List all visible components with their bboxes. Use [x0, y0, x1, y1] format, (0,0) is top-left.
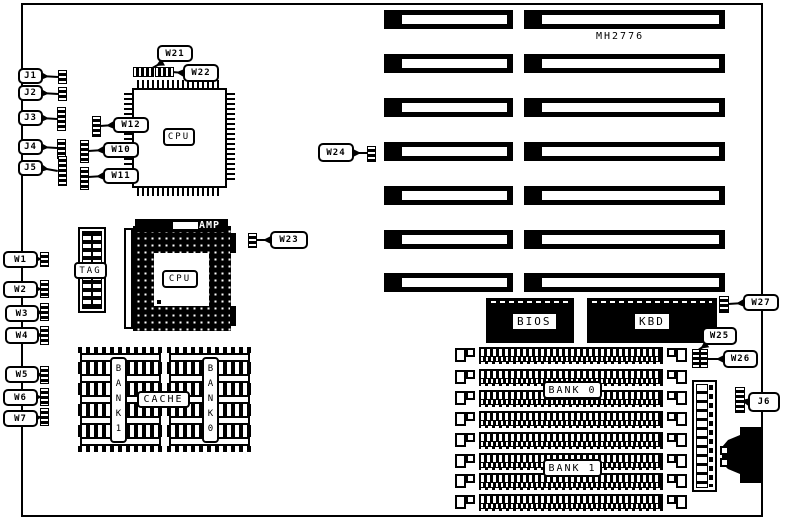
- simm-latch-right-icon: [676, 348, 687, 362]
- jumper-J3: [57, 107, 66, 131]
- jumper-W1: [40, 252, 49, 267]
- isa-slot-short: [384, 186, 513, 205]
- callout-J3: J3: [18, 110, 43, 126]
- pga-pin1-marker: [157, 300, 161, 304]
- isa-slot-long: [524, 10, 725, 29]
- callout-W24: W24: [318, 143, 354, 162]
- simm-latch-left-hook-icon: [466, 348, 475, 357]
- simm-latch-right-hook-icon: [667, 370, 676, 379]
- callout-J4: J4: [18, 139, 43, 155]
- simm-socket: [455, 411, 687, 428]
- qfp-cpu-pins-bottom-icon: [137, 188, 222, 196]
- simm-solder-pads-icon: [481, 488, 661, 490]
- callout-W2: W2: [3, 281, 38, 298]
- simm-pins-lower-icon: [481, 400, 661, 404]
- simm-latch-left-hook-icon: [466, 412, 475, 421]
- jumper-W6: [40, 388, 49, 406]
- dip-pins-bottom-icon: [78, 446, 163, 452]
- simm-latch-right-icon: [676, 474, 687, 488]
- simm-latch-right-hook-icon: [667, 495, 676, 504]
- simm-latch-left-hook-icon: [466, 370, 475, 379]
- simm-latch-right-icon: [676, 370, 687, 384]
- keyboard-din-connector: [720, 427, 763, 483]
- callout-W11: W11: [103, 168, 139, 184]
- simm-latch-right-hook-icon: [667, 391, 676, 400]
- isa-slot-short: [384, 54, 513, 73]
- simm-solder-pads-icon: [481, 426, 661, 428]
- simm-socket: [455, 494, 687, 511]
- simm-pins-lower-icon: [481, 442, 661, 446]
- isa-slot-opening: [542, 147, 719, 156]
- isa-slot-long: [524, 142, 725, 161]
- callout-W3: W3: [5, 305, 39, 322]
- isa-slot-short: [384, 230, 513, 249]
- jumper-J5: [58, 156, 67, 186]
- simm-pins-upper-icon: [481, 349, 661, 356]
- isa-slot-opening: [542, 103, 719, 112]
- power-connector-key-column-icon: [709, 385, 713, 487]
- jumper-W24: [367, 146, 376, 162]
- isa-slot-opening: [402, 59, 507, 68]
- simm-latch-left-hook-icon: [466, 454, 475, 463]
- callout-W12: W12: [113, 117, 149, 133]
- isa-slot-long: [524, 186, 725, 205]
- simm-solder-pads-icon: [481, 362, 661, 364]
- isa-slot-opening: [402, 15, 507, 24]
- kbd-label: KBD: [634, 313, 670, 330]
- callout-W21: W21: [157, 45, 193, 62]
- simm-latch-right-hook-icon: [667, 454, 676, 463]
- dip-pins-bottom-icon: [167, 446, 252, 452]
- pga-cpu-label: CPU: [162, 270, 198, 288]
- simm-latch-left-icon: [455, 370, 466, 384]
- isa-slot-opening: [402, 103, 507, 112]
- cache-label: CACHE: [137, 391, 190, 408]
- cache-bank1-label: BANK1: [110, 357, 127, 443]
- tag-label: TAG: [74, 262, 107, 279]
- simm-latch-left-icon: [455, 391, 466, 405]
- callout-W1: W1: [3, 251, 38, 268]
- jumper-J1: [58, 70, 67, 84]
- simm-latch-left-hook-icon: [466, 495, 475, 504]
- isa-slot-opening: [542, 278, 719, 287]
- bios-chip-notch-icon: [491, 301, 569, 303]
- callout-W22: W22: [183, 64, 219, 82]
- simm-pins-upper-icon: [481, 371, 661, 378]
- simm-socket: [455, 432, 687, 449]
- simm-latch-right-icon: [676, 412, 687, 426]
- simm-pins-lower-icon: [481, 504, 661, 508]
- motherboard-jumper-diagram: MH2776 CPU AMP CPU TAG BANK1 BANK0 CACHE…: [0, 0, 786, 520]
- simm-latch-left-hook-icon: [466, 433, 475, 442]
- jumper-J6: [735, 387, 745, 413]
- isa-slot-opening: [402, 235, 507, 244]
- simm-pin-bar: [479, 347, 663, 364]
- callout-W4: W4: [5, 327, 39, 344]
- callout-J5: J5: [18, 160, 43, 176]
- simm-latch-left-hook-icon: [466, 474, 475, 483]
- din-tab-bottom-icon: [720, 458, 729, 467]
- simm-latch-right-icon: [676, 495, 687, 509]
- jumper-W23: [248, 233, 257, 248]
- jumper-W4: [40, 326, 49, 345]
- kbd-chip-notch-icon: [592, 301, 712, 303]
- jumper-W7: [40, 408, 49, 426]
- jumper-W25: [692, 349, 700, 368]
- jumper-W12: [92, 116, 101, 137]
- memory-bank1-label: BANK 1: [543, 459, 602, 477]
- isa-slot-opening: [542, 59, 719, 68]
- cache-bank0-label: BANK0: [202, 357, 219, 443]
- power-connector: [692, 380, 717, 492]
- simm-latch-left-icon: [455, 474, 466, 488]
- din-body-icon: [720, 427, 763, 483]
- simm-latch-left-icon: [455, 348, 466, 362]
- simm-solder-pads-icon: [481, 509, 661, 511]
- pga-latch-top-icon: [230, 233, 236, 253]
- callout-J2: J2: [18, 85, 43, 101]
- simm-latch-left-icon: [455, 454, 466, 468]
- simm-pins-upper-icon: [481, 434, 661, 441]
- leader-arrow-W24: [353, 149, 361, 157]
- simm-pins-upper-icon: [481, 496, 661, 503]
- amp-label: AMP: [199, 220, 220, 231]
- simm-pins-lower-icon: [481, 421, 661, 425]
- simm-pins-lower-icon: [481, 357, 661, 361]
- amp-socket-slot: [173, 222, 198, 229]
- callout-J1: J1: [18, 68, 43, 84]
- jumper-J2: [58, 87, 67, 101]
- isa-slot-short: [384, 10, 513, 29]
- isa-slot-opening: [542, 191, 719, 200]
- jumper-W3: [40, 303, 49, 321]
- board-marking: MH2776: [596, 31, 644, 42]
- simm-latch-right-icon: [676, 391, 687, 405]
- callout-J6: J6: [748, 392, 780, 412]
- callout-W6: W6: [3, 389, 38, 406]
- simm-latch-right-hook-icon: [667, 348, 676, 357]
- isa-slot-opening: [402, 278, 507, 287]
- pga-latch-bottom-icon: [230, 306, 236, 326]
- pga-socket-side-bar: [124, 228, 133, 329]
- bios-label: BIOS: [512, 313, 557, 330]
- simm-pins-upper-icon: [481, 413, 661, 420]
- jumper-W5: [40, 366, 49, 384]
- isa-slot-opening: [402, 191, 507, 200]
- simm-solder-pads-icon: [481, 447, 661, 449]
- simm-latch-left-icon: [455, 433, 466, 447]
- isa-slot-opening: [542, 15, 719, 24]
- jumper-W10: [80, 140, 89, 163]
- callout-W27: W27: [743, 294, 779, 311]
- jumper-W2: [40, 280, 49, 298]
- jumper-W27: [719, 296, 729, 313]
- callout-W23: W23: [270, 231, 308, 249]
- isa-slot-long: [524, 273, 725, 292]
- simm-latch-right-hook-icon: [667, 412, 676, 421]
- qfp-cpu-pins-right-icon: [227, 93, 235, 183]
- simm-latch-left-icon: [455, 495, 466, 509]
- isa-slot-long: [524, 98, 725, 117]
- jumper-W26: [700, 349, 708, 368]
- simm-latch-right-icon: [676, 454, 687, 468]
- simm-pin-bar: [479, 432, 663, 449]
- jumper-W22: [155, 67, 174, 77]
- simm-solder-pads-icon: [481, 405, 661, 407]
- simm-latch-left-hook-icon: [466, 391, 475, 400]
- din-tab-top-icon: [720, 446, 729, 455]
- simm-socket: [455, 347, 687, 364]
- isa-slot-opening: [542, 235, 719, 244]
- jumper-W11: [80, 167, 89, 190]
- jumper-W21: [133, 67, 154, 77]
- isa-slot-short: [384, 273, 513, 292]
- memory-bank0-label: BANK 0: [543, 381, 602, 399]
- simm-latch-right-hook-icon: [667, 433, 676, 442]
- isa-slot-short: [384, 98, 513, 117]
- simm-pin-bar: [479, 411, 663, 428]
- isa-slot-opening: [402, 147, 507, 156]
- callout-W5: W5: [5, 366, 39, 383]
- simm-latch-right-hook-icon: [667, 474, 676, 483]
- qfp-cpu-label: CPU: [163, 128, 195, 146]
- isa-slot-long: [524, 54, 725, 73]
- simm-latch-left-icon: [455, 412, 466, 426]
- isa-slot-short: [384, 142, 513, 161]
- callout-W25: W25: [702, 327, 737, 345]
- simm-latch-right-icon: [676, 433, 687, 447]
- callout-W7: W7: [3, 410, 38, 427]
- isa-slot-long: [524, 230, 725, 249]
- simm-pin-bar: [479, 494, 663, 511]
- callout-W26: W26: [723, 350, 758, 368]
- power-connector-pin-column-icon: [696, 384, 708, 488]
- callout-W10: W10: [103, 142, 139, 158]
- simm-pins-lower-icon: [481, 483, 661, 487]
